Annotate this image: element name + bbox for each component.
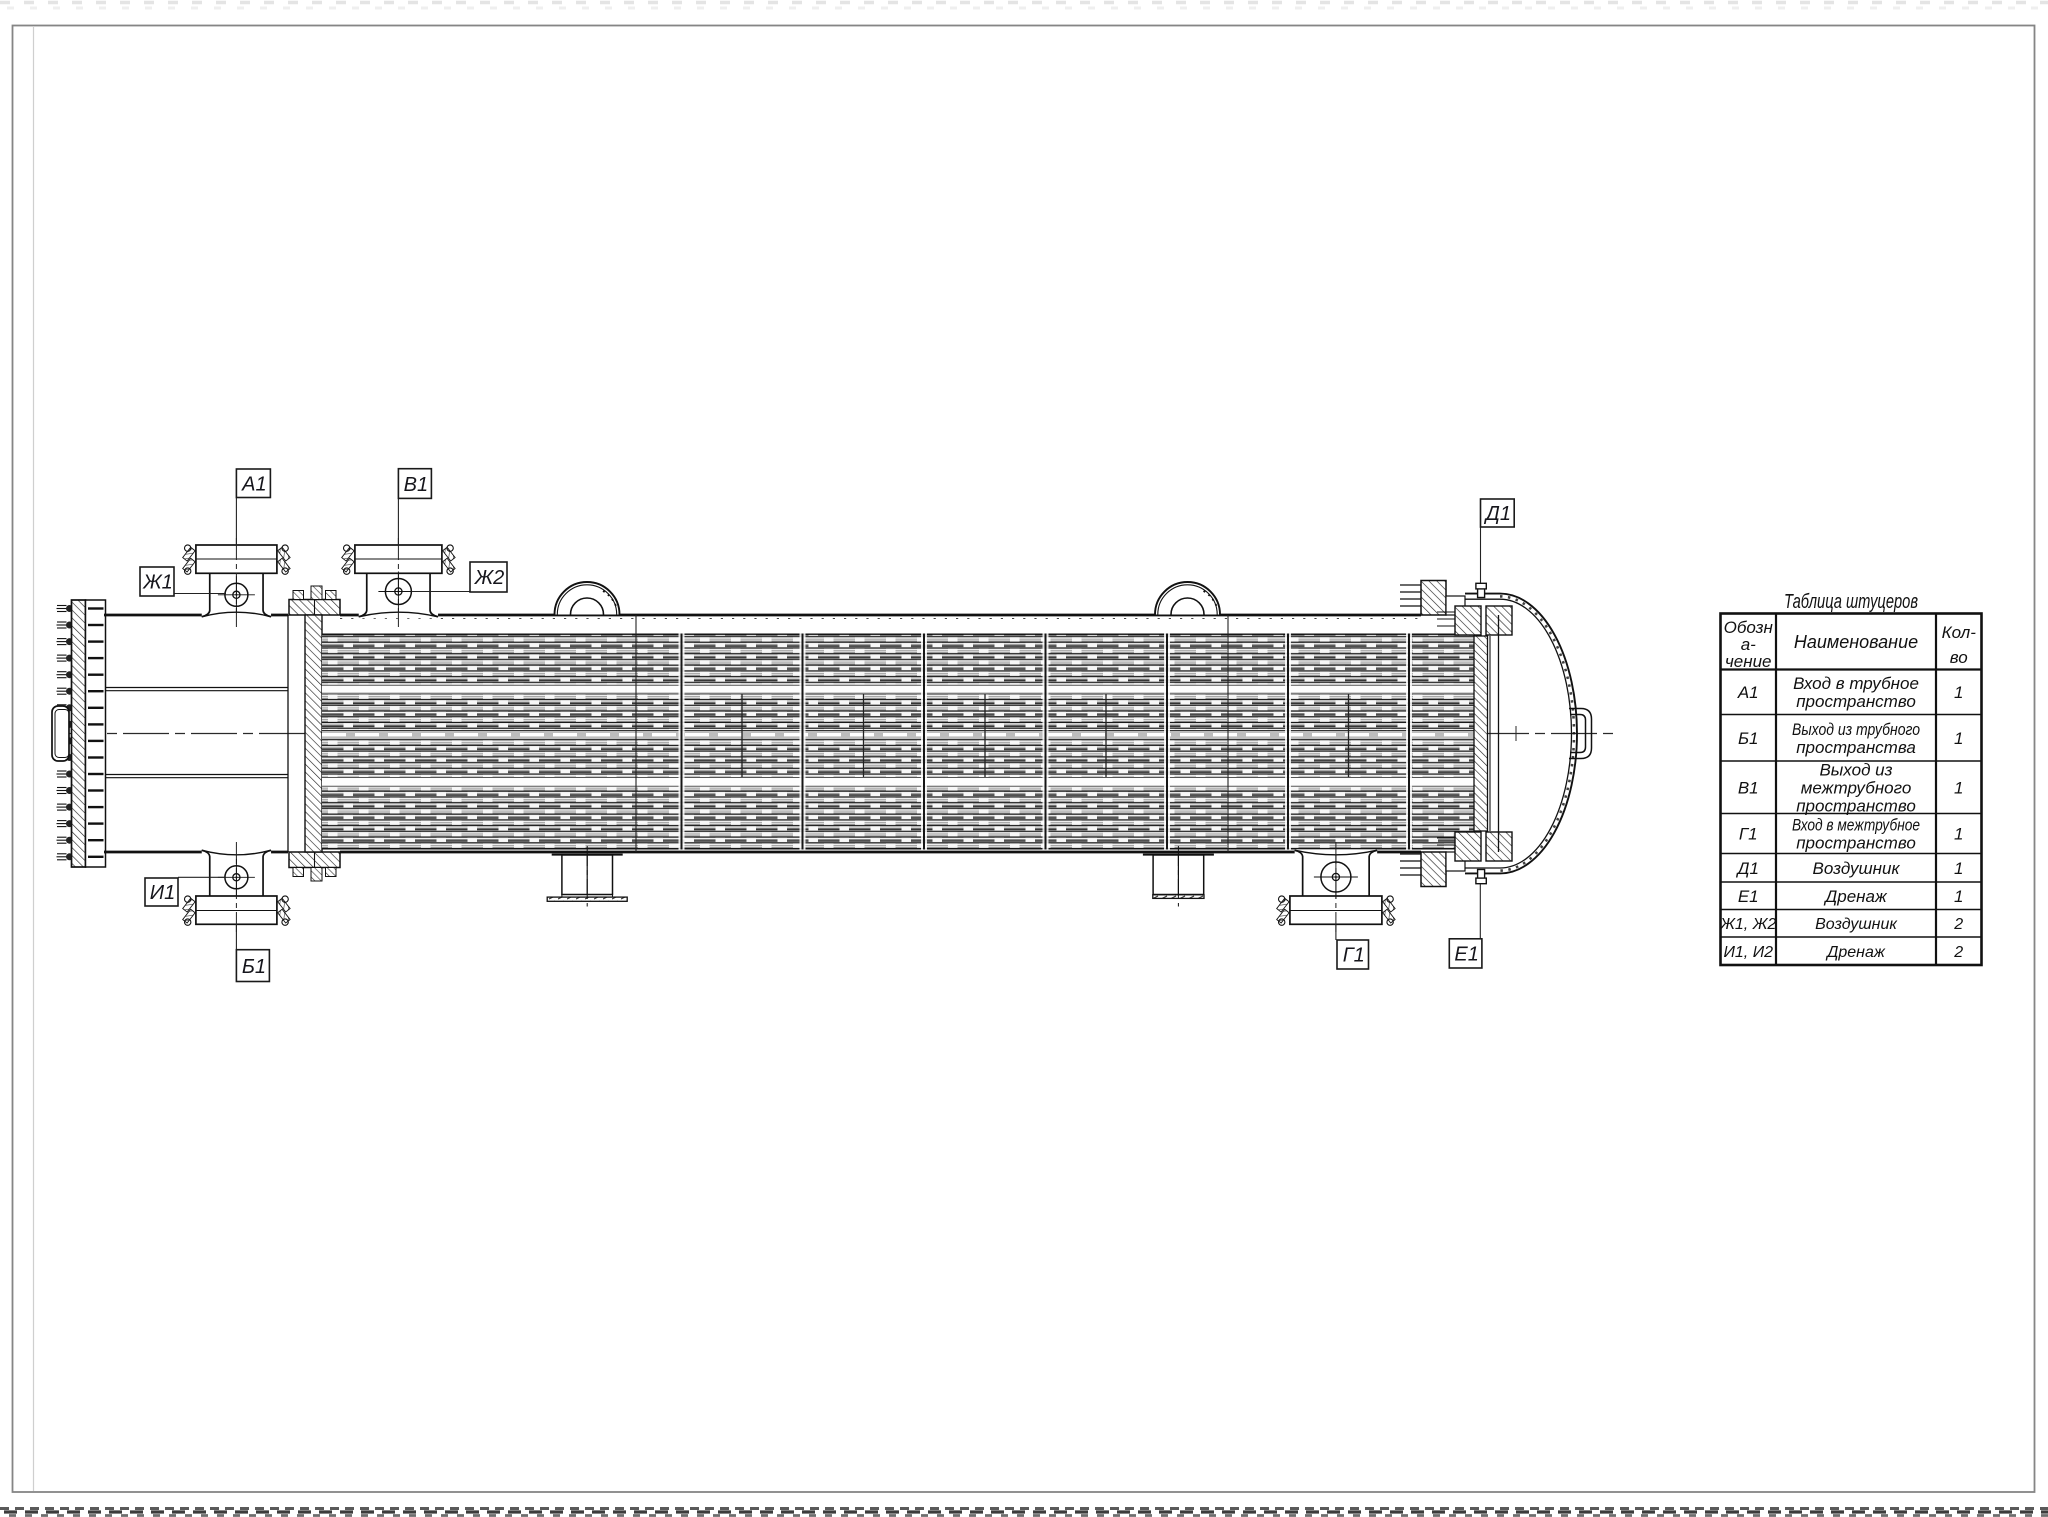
svg-text:Б1: Б1 — [242, 956, 266, 978]
svg-text:Кол-: Кол- — [1942, 623, 1977, 642]
svg-text:пространство: пространство — [1796, 692, 1916, 711]
svg-text:пространства: пространства — [1796, 738, 1916, 757]
svg-text:чение: чение — [1725, 652, 1772, 671]
svg-text:А1: А1 — [1737, 683, 1759, 702]
svg-text:1: 1 — [1954, 778, 1963, 797]
svg-text:Воздушник: Воздушник — [1813, 859, 1901, 878]
svg-text:Г1: Г1 — [1343, 945, 1365, 967]
svg-text:Выход из: Выход из — [1819, 760, 1892, 779]
svg-text:Дренаж: Дренаж — [1825, 944, 1886, 961]
svg-text:Ж1, Ж2: Ж1, Ж2 — [1719, 916, 1776, 933]
svg-text:Д1: Д1 — [1484, 503, 1511, 525]
svg-text:Е1: Е1 — [1454, 944, 1478, 966]
svg-text:Б1: Б1 — [1738, 729, 1759, 748]
svg-text:Дренаж: Дренаж — [1823, 887, 1888, 906]
svg-text:1: 1 — [1954, 729, 1963, 748]
svg-text:Таблица штуцеров: Таблица штуцеров — [1784, 591, 1918, 613]
svg-text:Ж2: Ж2 — [474, 567, 504, 589]
svg-text:1: 1 — [1954, 887, 1963, 906]
svg-text:пространство: пространство — [1796, 796, 1916, 815]
svg-text:Вход в трубное: Вход в трубное — [1793, 674, 1919, 693]
svg-text:Г1: Г1 — [1739, 825, 1758, 844]
svg-text:1: 1 — [1954, 683, 1963, 702]
svg-text:1: 1 — [1954, 825, 1963, 844]
svg-text:Е1: Е1 — [1738, 887, 1759, 906]
svg-text:2: 2 — [1953, 916, 1963, 933]
svg-text:Ж1: Ж1 — [142, 572, 172, 594]
svg-text:Д1: Д1 — [1736, 859, 1759, 878]
svg-text:Вход в межтрубное: Вход в межтрубное — [1792, 816, 1920, 835]
svg-text:А1: А1 — [241, 473, 266, 495]
svg-text:межтрубного: межтрубного — [1801, 778, 1912, 797]
svg-text:Наименование: Наименование — [1794, 632, 1918, 652]
svg-text:во: во — [1950, 648, 1968, 667]
svg-text:пространство: пространство — [1796, 834, 1916, 853]
svg-text:В1: В1 — [404, 474, 428, 496]
svg-text:И1, И2: И1, И2 — [1723, 944, 1773, 961]
svg-text:Выход из трубного: Выход из трубного — [1792, 720, 1920, 739]
svg-text:Воздушник: Воздушник — [1815, 916, 1898, 933]
svg-text:1: 1 — [1954, 859, 1963, 878]
svg-text:В1: В1 — [1738, 778, 1759, 797]
svg-text:И1: И1 — [150, 882, 175, 904]
svg-text:2: 2 — [1953, 944, 1963, 961]
